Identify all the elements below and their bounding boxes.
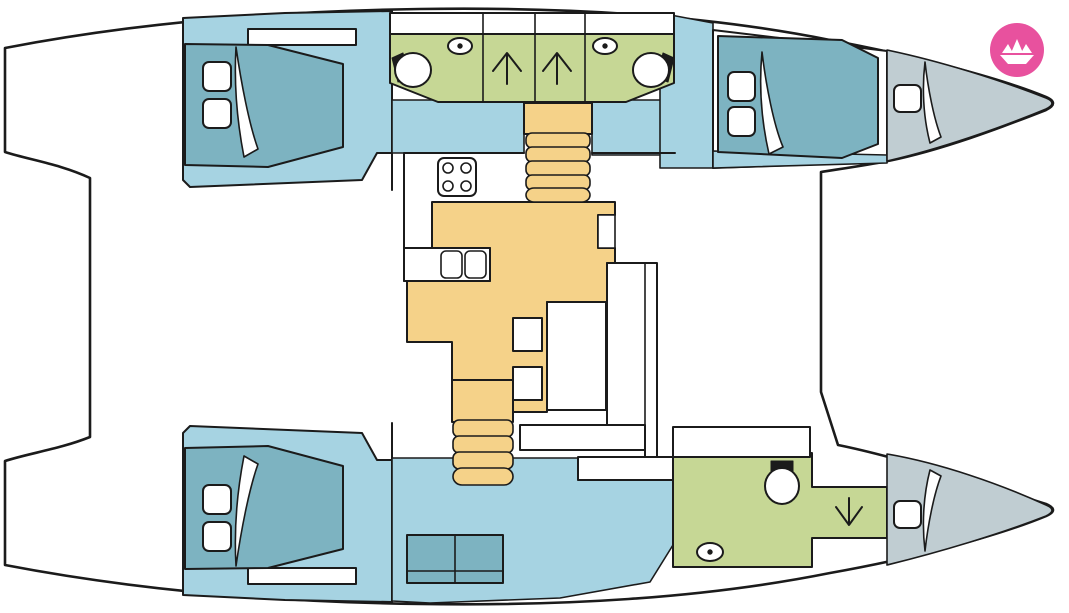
galley-sink-icon [441,251,462,278]
aft-bench [520,425,645,450]
basin-drain [708,550,712,554]
aft-cabin-shelf [248,29,356,45]
stairs-port [452,380,513,485]
plan-root [5,9,1053,605]
stair-tread [453,420,513,437]
burner [443,181,453,191]
pillow [728,72,755,101]
stair-tread [453,452,513,469]
floor-plan-svg [0,0,1069,613]
stair-tread [453,468,513,485]
pillow [894,85,921,112]
pillow [894,501,921,528]
starboard-bathroom-floor [390,33,674,102]
dinette-table [547,302,606,410]
stair-landing [452,380,513,422]
stair-tread [526,161,590,176]
burner [461,163,471,173]
stair-tread [526,133,590,148]
stair-tread [453,436,513,453]
pillow [203,62,231,91]
pillow [203,522,231,551]
stair-tread [526,147,590,162]
toilet-icon [395,53,431,87]
toilet-icon [633,53,669,87]
seat [513,367,542,400]
paper-boat-logo [990,23,1044,77]
fridge [598,215,615,248]
basin-drain [458,44,462,48]
deck-hatch-strip [390,13,674,34]
pillow [728,107,755,136]
basin-drain [603,44,607,48]
bathroom-counter [673,427,810,457]
stair-tread [526,188,590,202]
stair-landing [524,103,592,134]
stove-icon [438,158,476,196]
toilet-icon [765,468,799,504]
boat-floor-plan [0,0,1069,613]
burner [461,181,471,191]
seat [513,318,542,351]
stairs-starboard [524,103,592,202]
corridor-shelf [578,457,673,480]
starboard-corridor-left [392,100,524,153]
aft-cabin-shelf [248,568,356,584]
burner [443,163,453,173]
pillow [203,99,231,128]
galley-sink-icon [465,251,486,278]
pillow [203,485,231,514]
